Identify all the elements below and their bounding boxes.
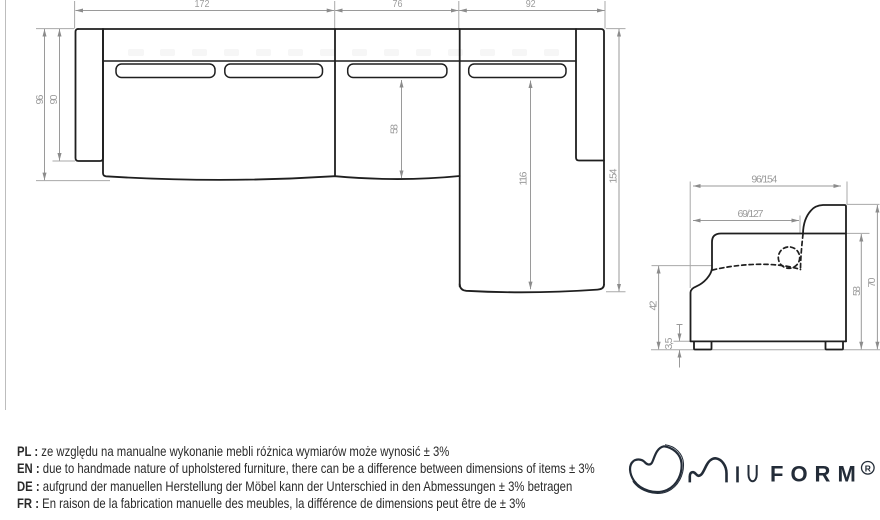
svg-text:R: R xyxy=(865,464,871,474)
svg-text:FORM: FORM xyxy=(770,462,863,487)
